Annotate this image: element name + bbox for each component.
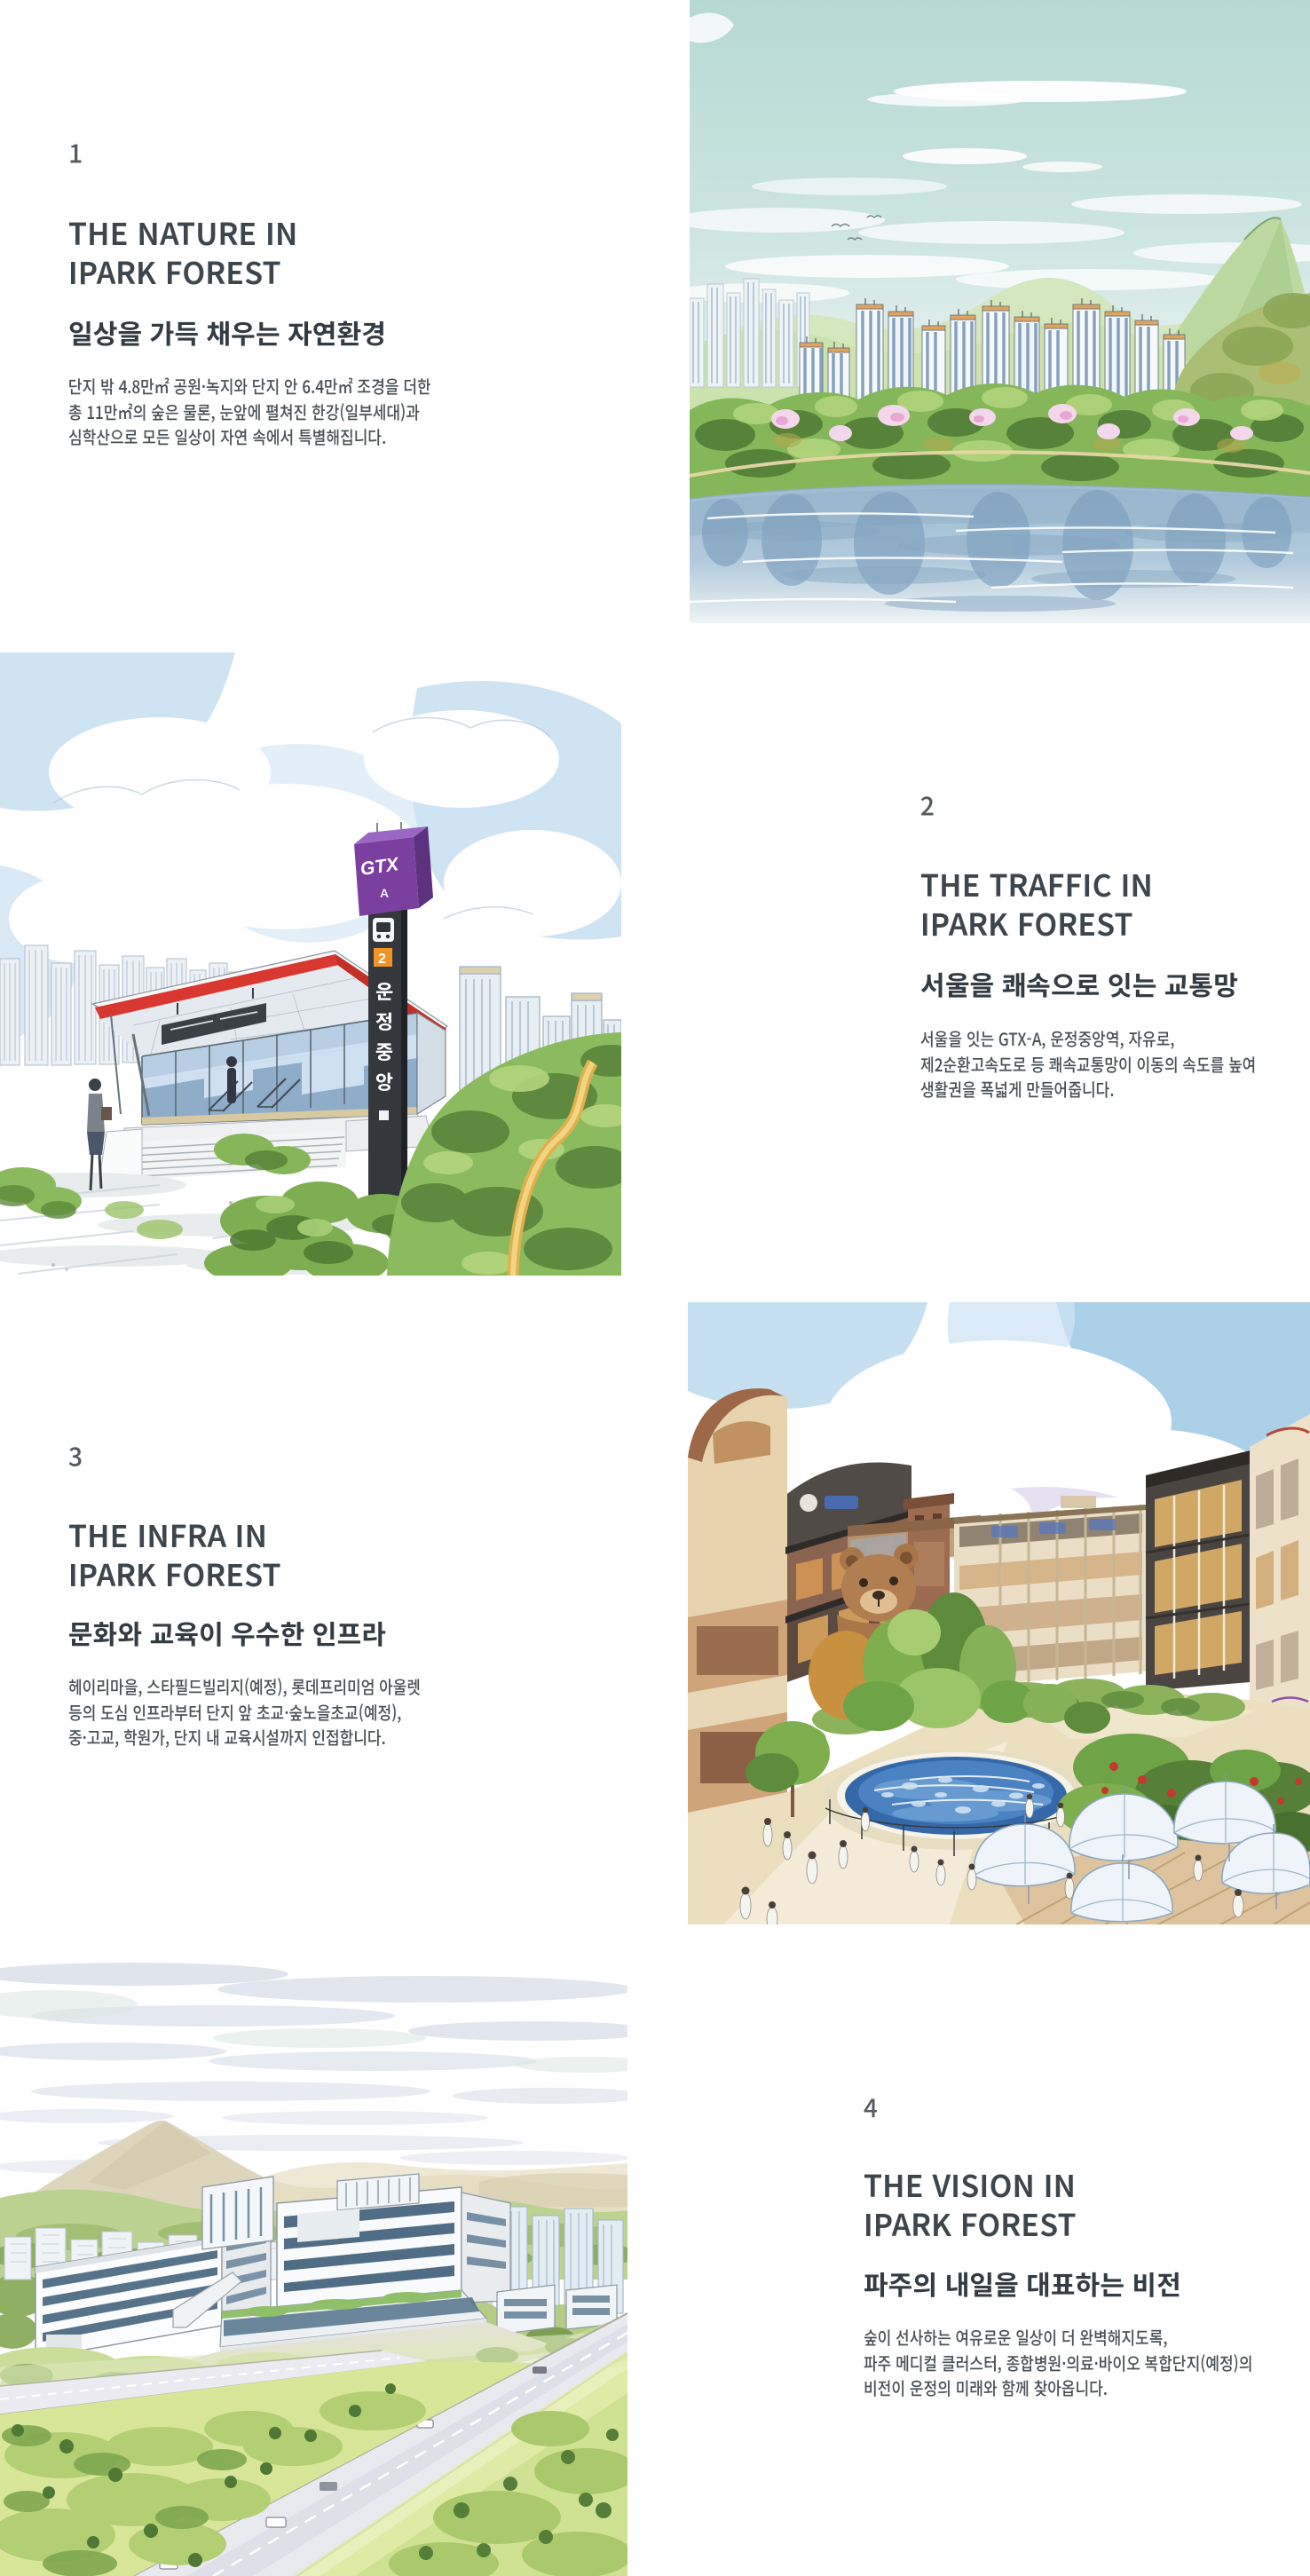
svg-text:운: 운 xyxy=(375,976,393,1005)
svg-text:2: 2 xyxy=(378,952,386,967)
svg-text:중: 중 xyxy=(375,1037,393,1065)
svg-text:정: 정 xyxy=(375,1007,393,1035)
svg-text:앙: 앙 xyxy=(375,1067,393,1095)
svg-text:A: A xyxy=(380,886,389,900)
